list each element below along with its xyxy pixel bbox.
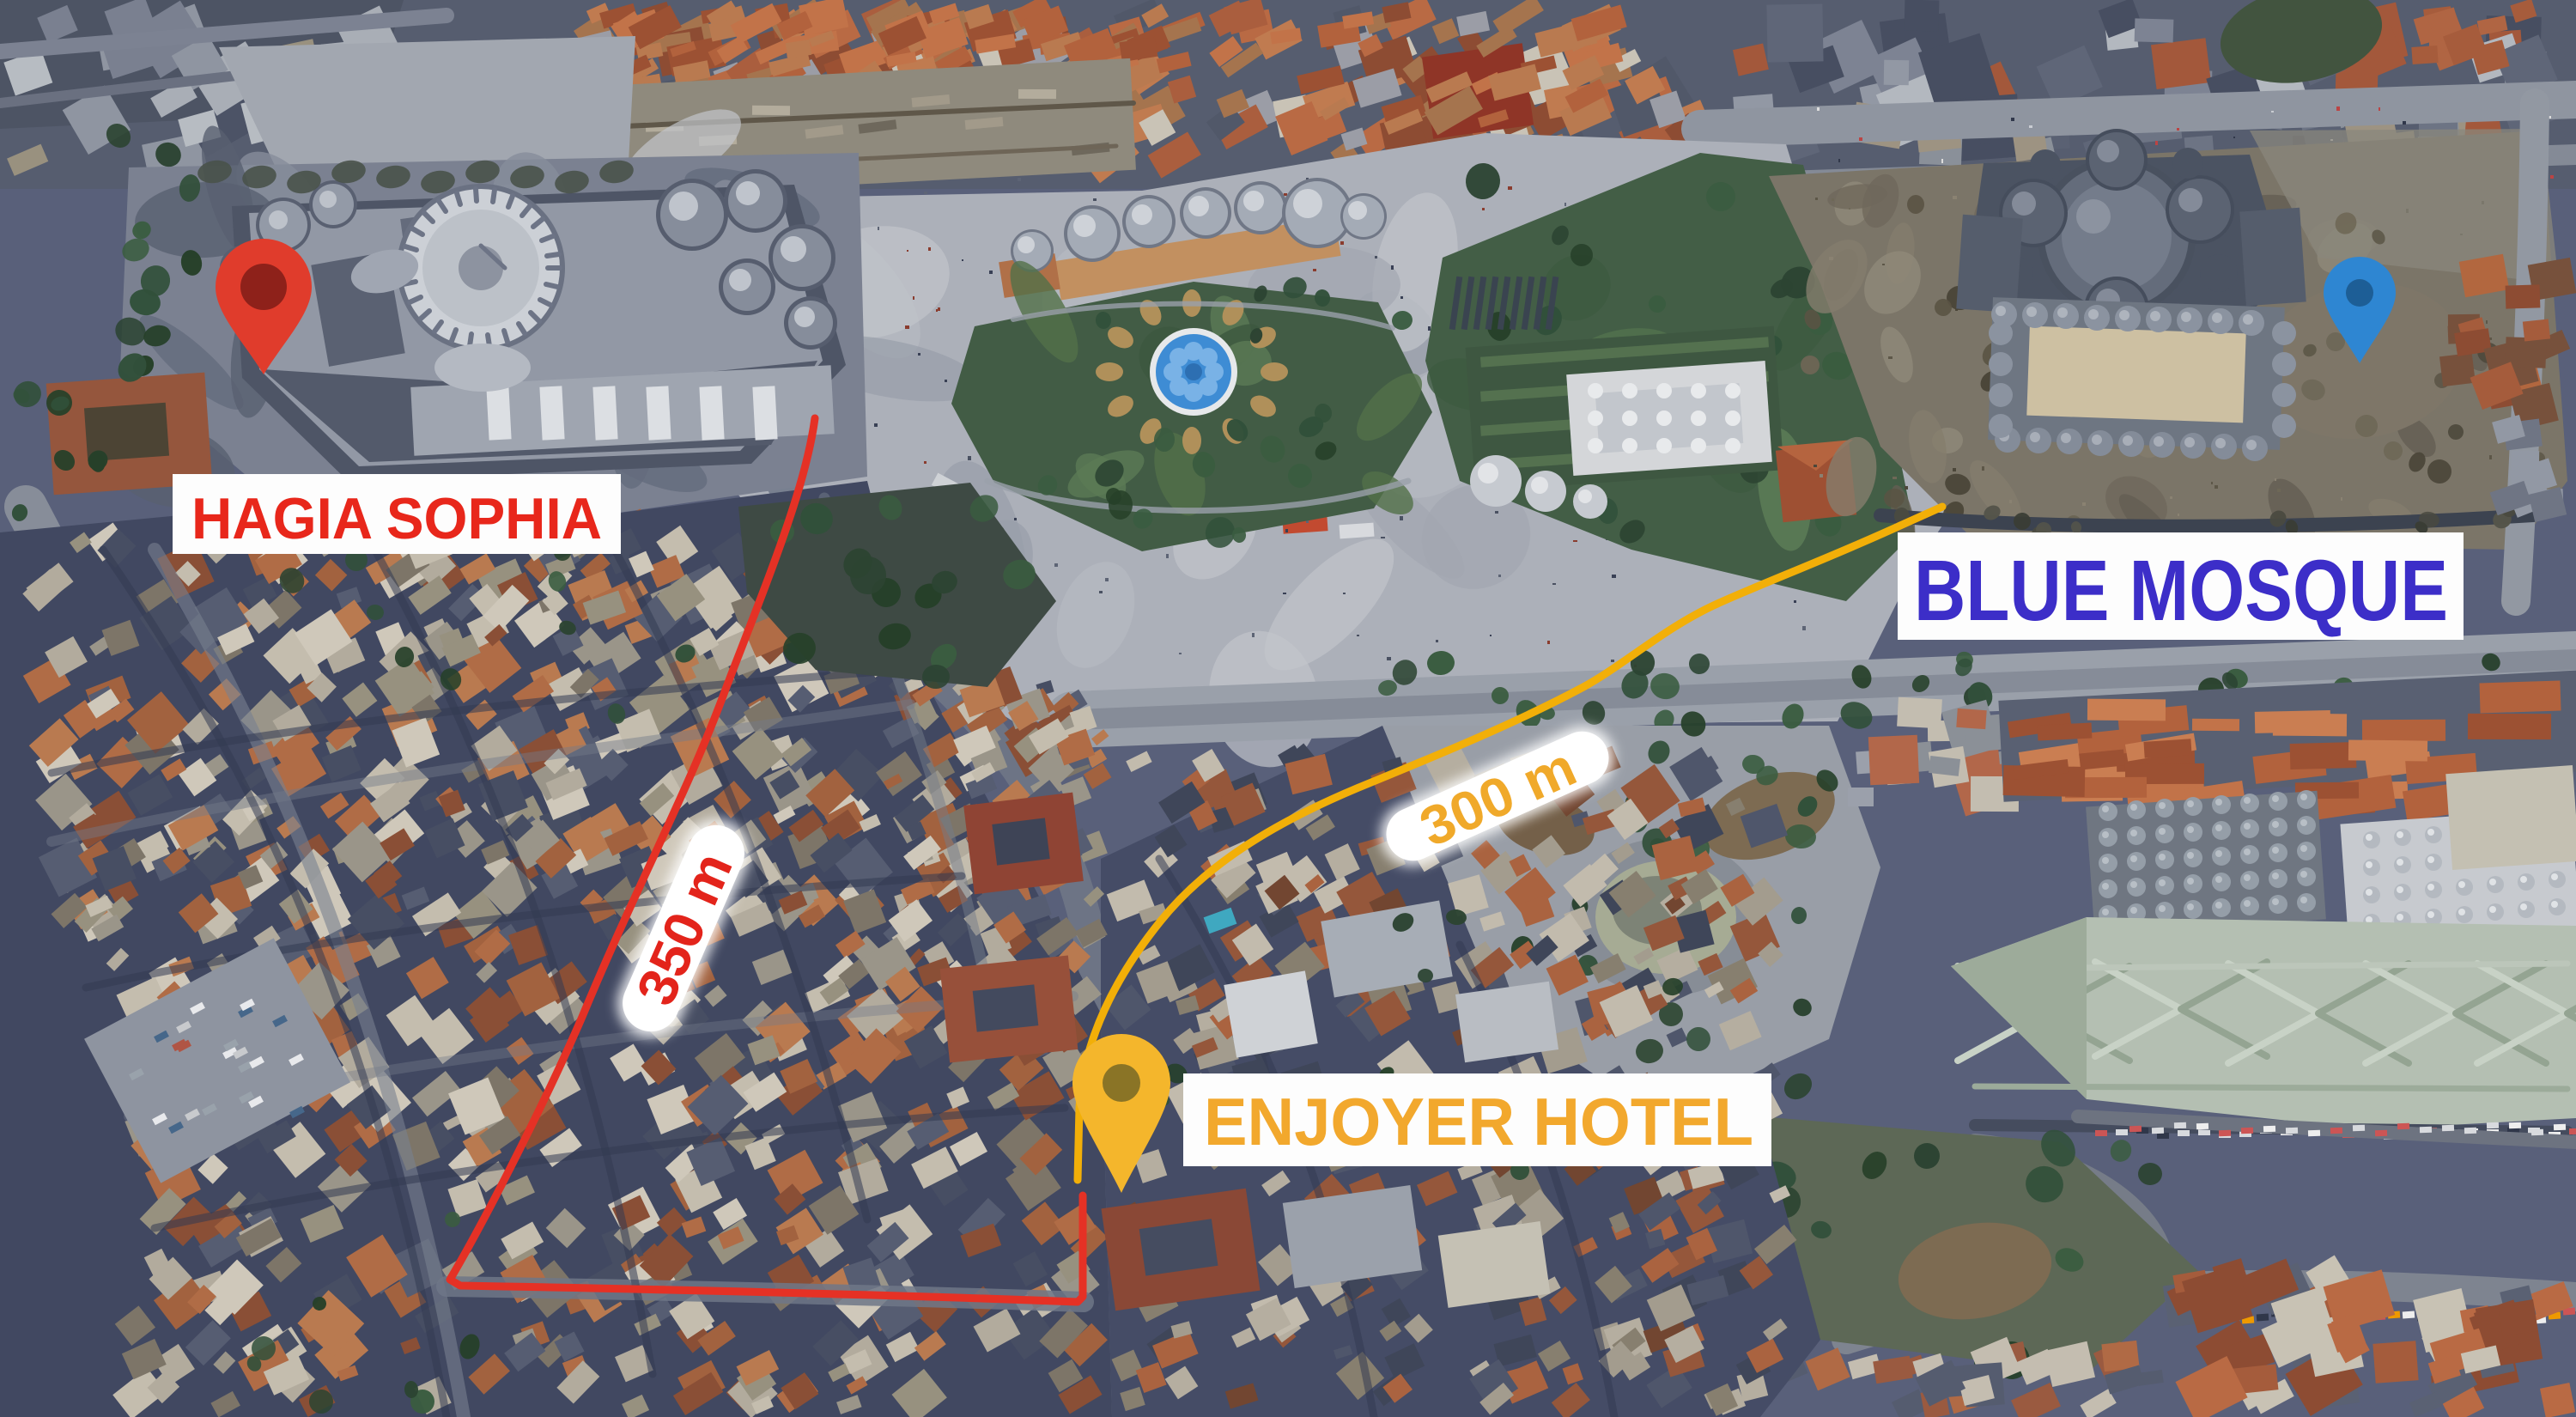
svg-text:BLUE MOSQUE: BLUE MOSQUE bbox=[1914, 543, 2448, 639]
svg-text:ENJOYER HOTEL: ENJOYER HOTEL bbox=[1204, 1084, 1753, 1159]
svg-text:HAGIA SOPHIA: HAGIA SOPHIA bbox=[191, 486, 602, 551]
